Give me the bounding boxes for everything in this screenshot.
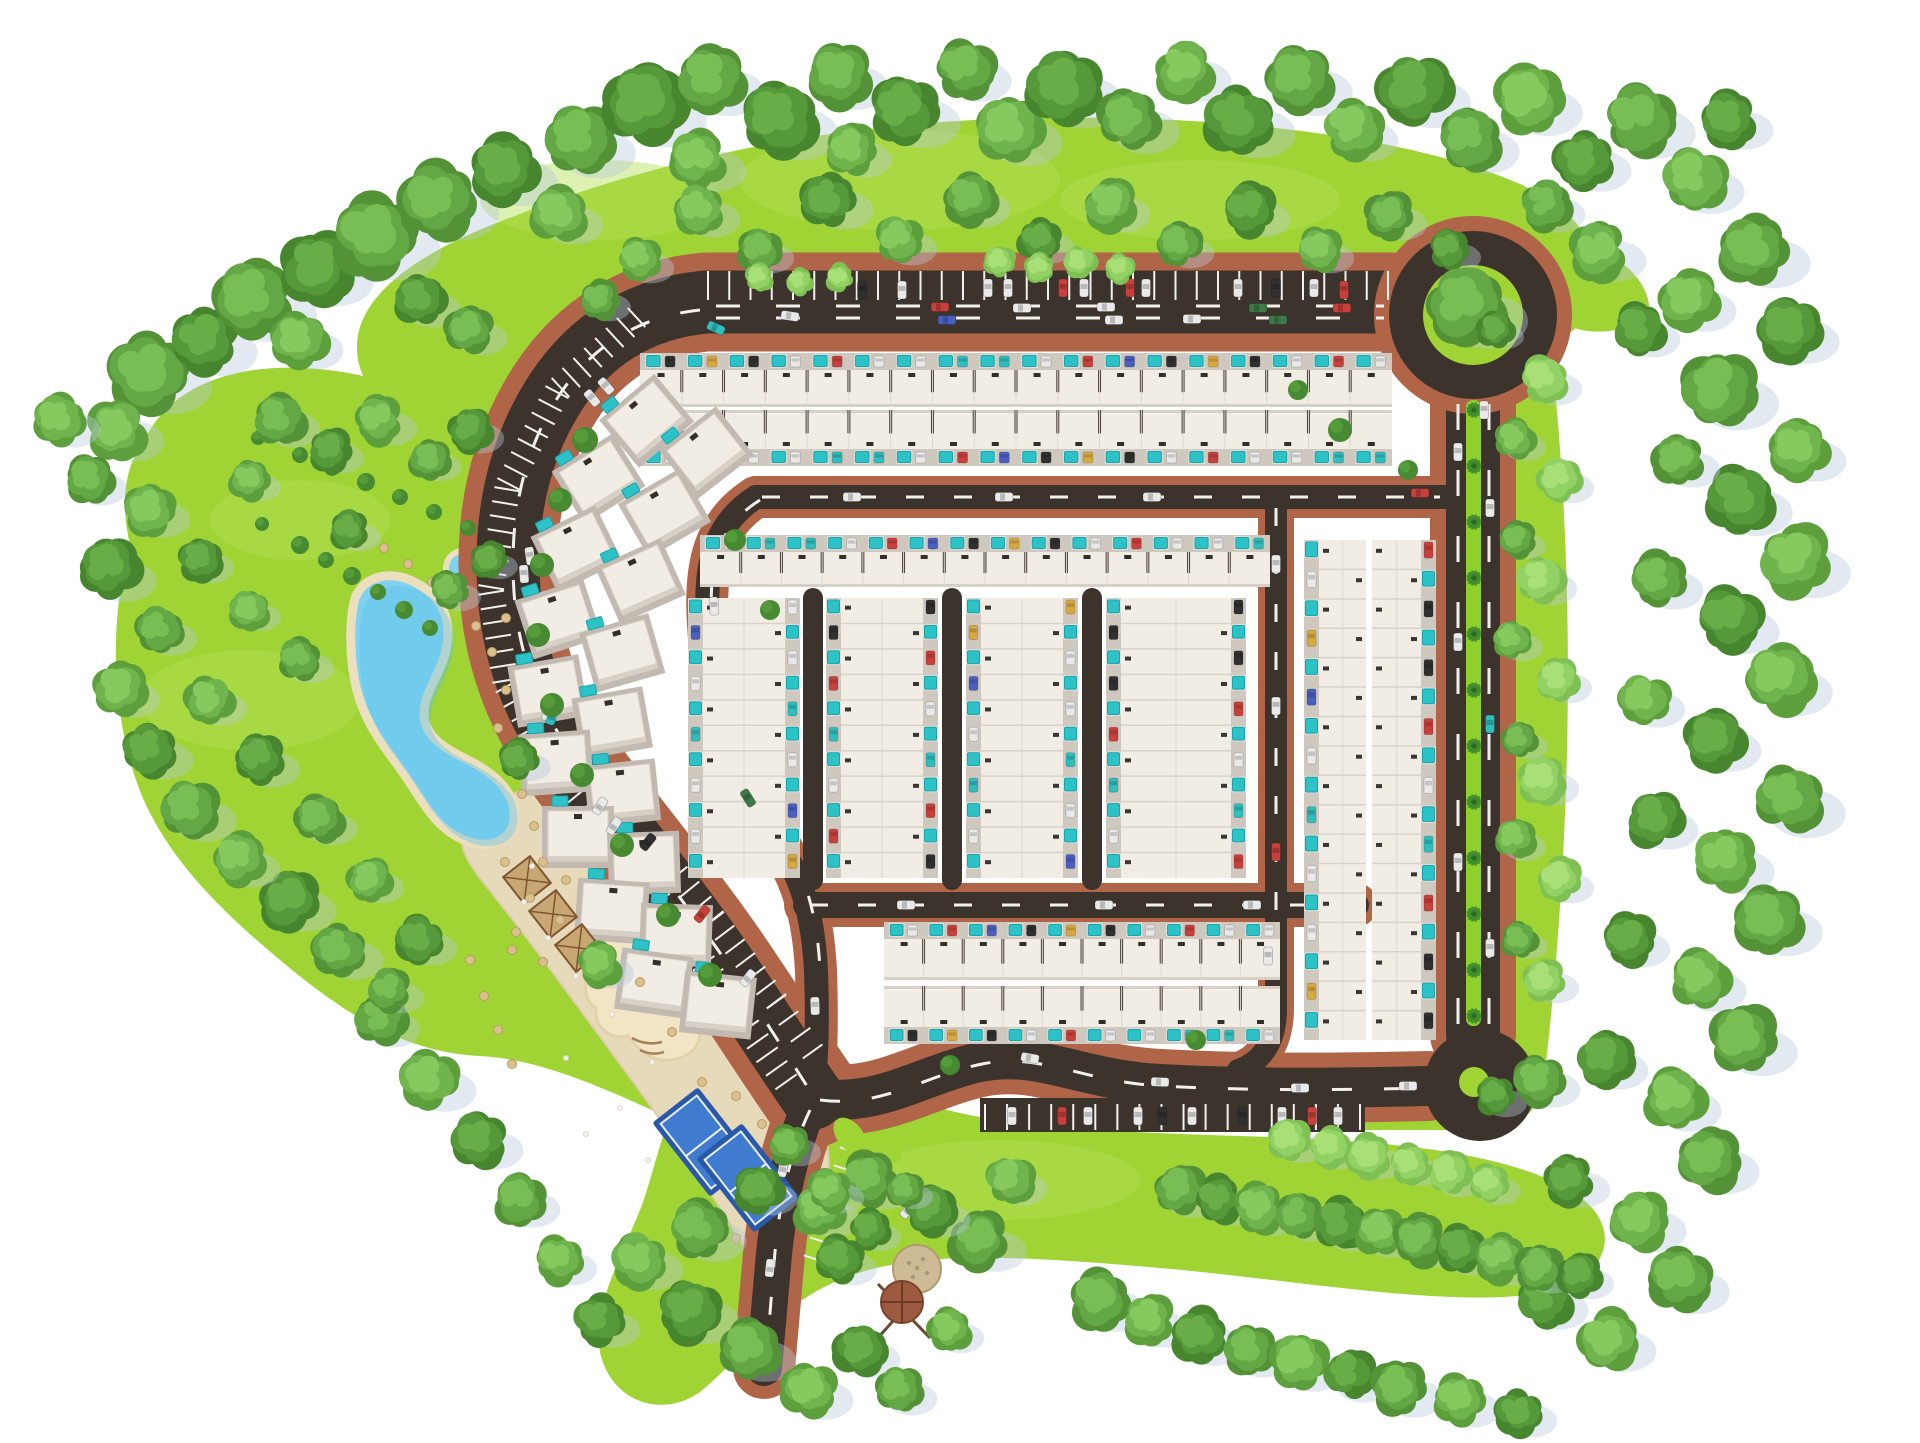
umbrella-dot	[501, 858, 510, 867]
car-icon	[1399, 1082, 1417, 1091]
umbrella-dot	[562, 876, 571, 885]
villa-column	[966, 598, 1078, 878]
car-icon	[1249, 304, 1267, 313]
car-icon	[1272, 555, 1281, 573]
car-icon	[1188, 1107, 1197, 1125]
car-icon	[1486, 939, 1495, 957]
car-icon	[897, 901, 915, 910]
car-icon	[1272, 697, 1281, 715]
villa-column	[826, 598, 938, 878]
car-icon	[709, 597, 719, 616]
car-icon	[765, 1259, 776, 1278]
villa-column	[688, 598, 800, 878]
umbrella-dot	[502, 614, 511, 623]
car-icon	[1264, 947, 1273, 965]
umbrella-dot	[556, 916, 565, 925]
car-icon	[1084, 1107, 1093, 1125]
car-icon	[1238, 1107, 1247, 1125]
umbrella-dot	[466, 956, 475, 965]
umbrella-dot	[508, 946, 517, 955]
car-icon	[931, 303, 949, 312]
villa-column	[1106, 598, 1246, 878]
car-icon	[1097, 303, 1115, 312]
car-icon	[1411, 489, 1429, 498]
car-icon	[1058, 1107, 1067, 1125]
car-icon	[1234, 279, 1243, 297]
car-icon	[1272, 279, 1281, 297]
car-icon	[810, 997, 820, 1015]
umbrella-dot	[480, 992, 489, 1001]
villa-column	[1372, 540, 1436, 1040]
car-icon	[780, 310, 799, 321]
car-icon	[1486, 499, 1495, 517]
car-icon	[1105, 316, 1123, 325]
umbrella-dot	[518, 790, 527, 799]
umbrella-dot	[539, 858, 548, 867]
car-icon	[1486, 715, 1495, 733]
car-icon	[1151, 1077, 1169, 1087]
car-icon	[938, 316, 956, 325]
car-icon	[1008, 1107, 1017, 1125]
car-icon	[1158, 1107, 1167, 1125]
car-icon	[984, 279, 993, 297]
car-icon	[1272, 843, 1281, 861]
median-green	[1466, 400, 1481, 1026]
umbrella-dot	[380, 544, 389, 553]
car-icon	[1183, 315, 1201, 324]
car-icon	[843, 493, 861, 502]
right-road-median	[1466, 400, 1483, 1026]
car-icon	[1059, 279, 1068, 297]
car-icon	[995, 493, 1013, 502]
car-icon	[1340, 281, 1349, 299]
car-icon	[1454, 633, 1463, 651]
car-icon	[1004, 279, 1013, 297]
umbrella-dot	[530, 822, 539, 831]
car-icon	[1134, 1107, 1143, 1125]
villa-row	[884, 922, 1280, 980]
car-icon	[1480, 401, 1489, 419]
villa-row	[700, 535, 1270, 587]
car-icon	[1143, 493, 1161, 502]
car-icon	[1310, 279, 1319, 297]
car-icon	[1334, 1107, 1343, 1125]
villa-row	[884, 986, 1280, 1044]
car-icon	[1080, 279, 1089, 297]
umbrella-dot	[494, 1026, 503, 1035]
car-icon	[898, 281, 907, 299]
car-icon	[1454, 443, 1463, 461]
car-icon	[519, 565, 529, 584]
car-icon	[1454, 853, 1463, 871]
umbrella-dot	[502, 686, 511, 695]
umbrella-dot	[539, 958, 548, 967]
car-icon	[858, 281, 867, 299]
car-icon	[1333, 304, 1351, 313]
villa-row	[640, 353, 1392, 407]
umbrella-dot	[488, 648, 497, 657]
car-icon	[1308, 1107, 1317, 1125]
umbrella-dot	[636, 978, 645, 987]
umbrella-dot	[508, 1060, 517, 1069]
umbrella-dot	[472, 622, 481, 631]
villa-column	[1304, 540, 1366, 1040]
car-icon	[1095, 901, 1113, 910]
umbrella-dot	[512, 928, 521, 937]
villa-row	[640, 410, 1392, 466]
car-icon	[1243, 901, 1261, 910]
umbrella-dot	[698, 1078, 707, 1087]
car-icon	[1013, 304, 1031, 313]
umbrella-dot	[758, 1120, 767, 1129]
site-plan-rendering	[0, 0, 1920, 1443]
umbrella-dot	[668, 1028, 677, 1037]
car-icon	[1142, 279, 1151, 297]
car-icon	[1291, 1084, 1309, 1093]
umbrella-dot	[404, 560, 413, 569]
umbrella-dot	[494, 724, 503, 733]
umbrella-dot	[732, 1092, 741, 1101]
site-plan-svg	[0, 0, 1920, 1443]
car-icon	[1269, 316, 1287, 325]
